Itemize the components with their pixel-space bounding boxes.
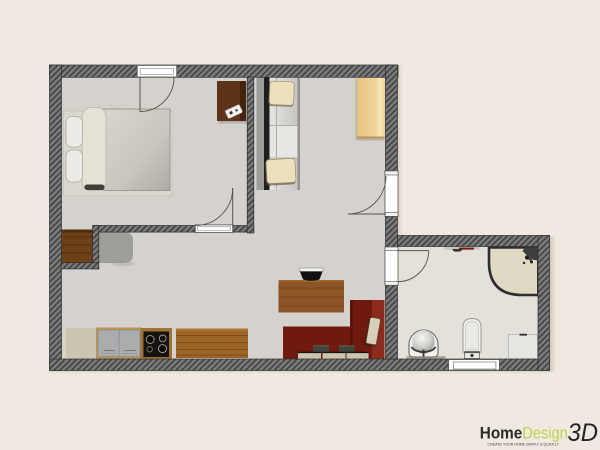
svg-text:3D: 3D	[568, 419, 599, 447]
svg-text:Design: Design	[522, 425, 568, 443]
svg-text:CREATE YOUR HOME SIMPLY & QUIC: CREATE YOUR HOME SIMPLY & QUICKLY	[488, 442, 560, 446]
svg-text:Home: Home	[480, 425, 523, 443]
